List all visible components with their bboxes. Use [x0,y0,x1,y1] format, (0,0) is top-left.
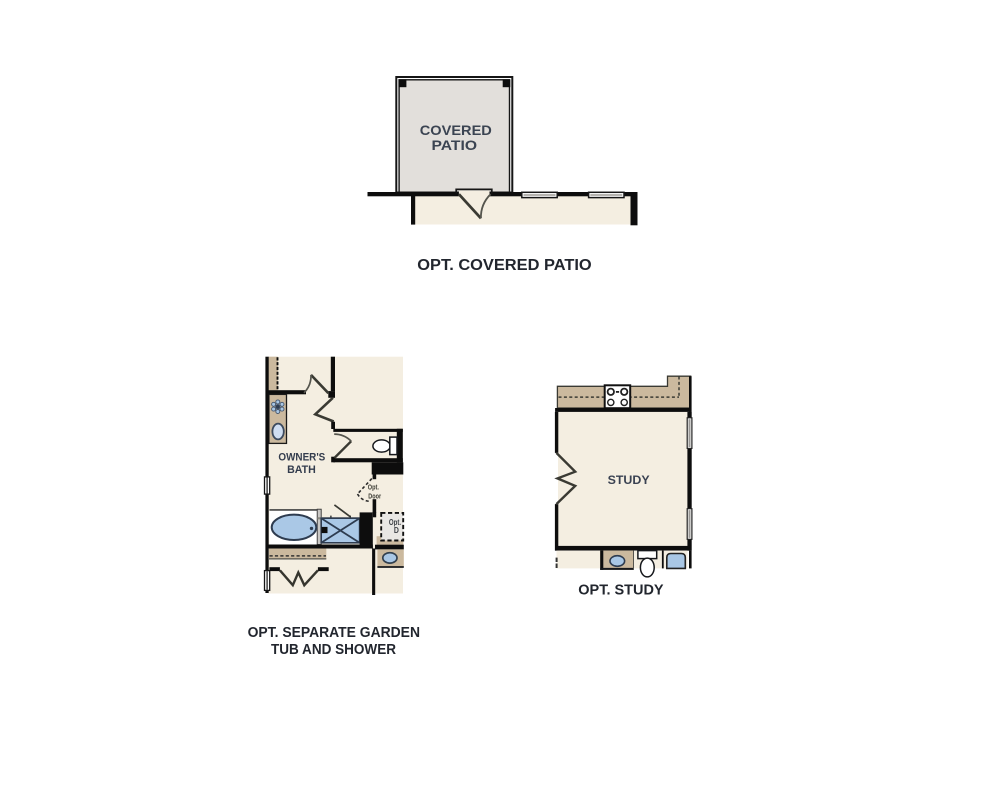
svg-text:BATH: BATH [287,464,316,476]
svg-text:COVERED: COVERED [420,122,492,138]
svg-text:D: D [394,526,399,535]
svg-text:OPT. STUDY: OPT. STUDY [578,583,664,599]
svg-text:OPT. SEPARATE GARDEN: OPT. SEPARATE GARDEN [248,624,420,641]
svg-text:Opt.: Opt. [368,484,379,491]
svg-text:STUDY: STUDY [608,473,651,487]
svg-text:OWNER'S: OWNER'S [278,452,325,464]
svg-text:Door: Door [368,493,381,500]
svg-text:OPT. COVERED PATIO: OPT. COVERED PATIO [417,257,591,274]
svg-text:PATIO: PATIO [432,137,478,153]
svg-text:TUB AND SHOWER: TUB AND SHOWER [271,641,396,658]
